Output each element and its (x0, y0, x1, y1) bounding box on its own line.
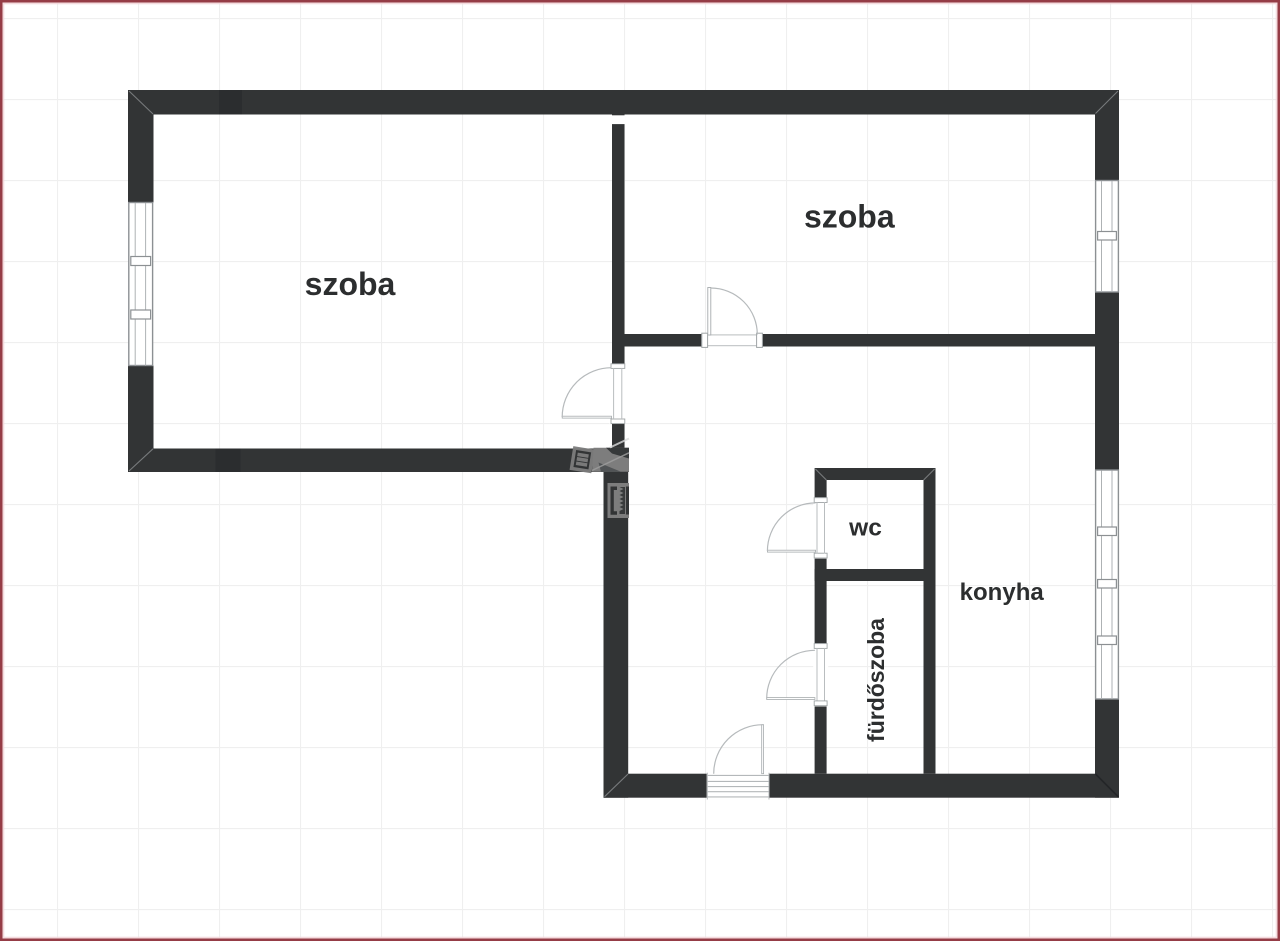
svg-text:wc: wc (848, 514, 882, 541)
svg-text:fürdőszoba: fürdőszoba (863, 618, 889, 742)
svg-text:konyha: konyha (960, 579, 1045, 606)
svg-text:szoba: szoba (305, 266, 396, 302)
svg-text:szoba: szoba (804, 199, 895, 235)
